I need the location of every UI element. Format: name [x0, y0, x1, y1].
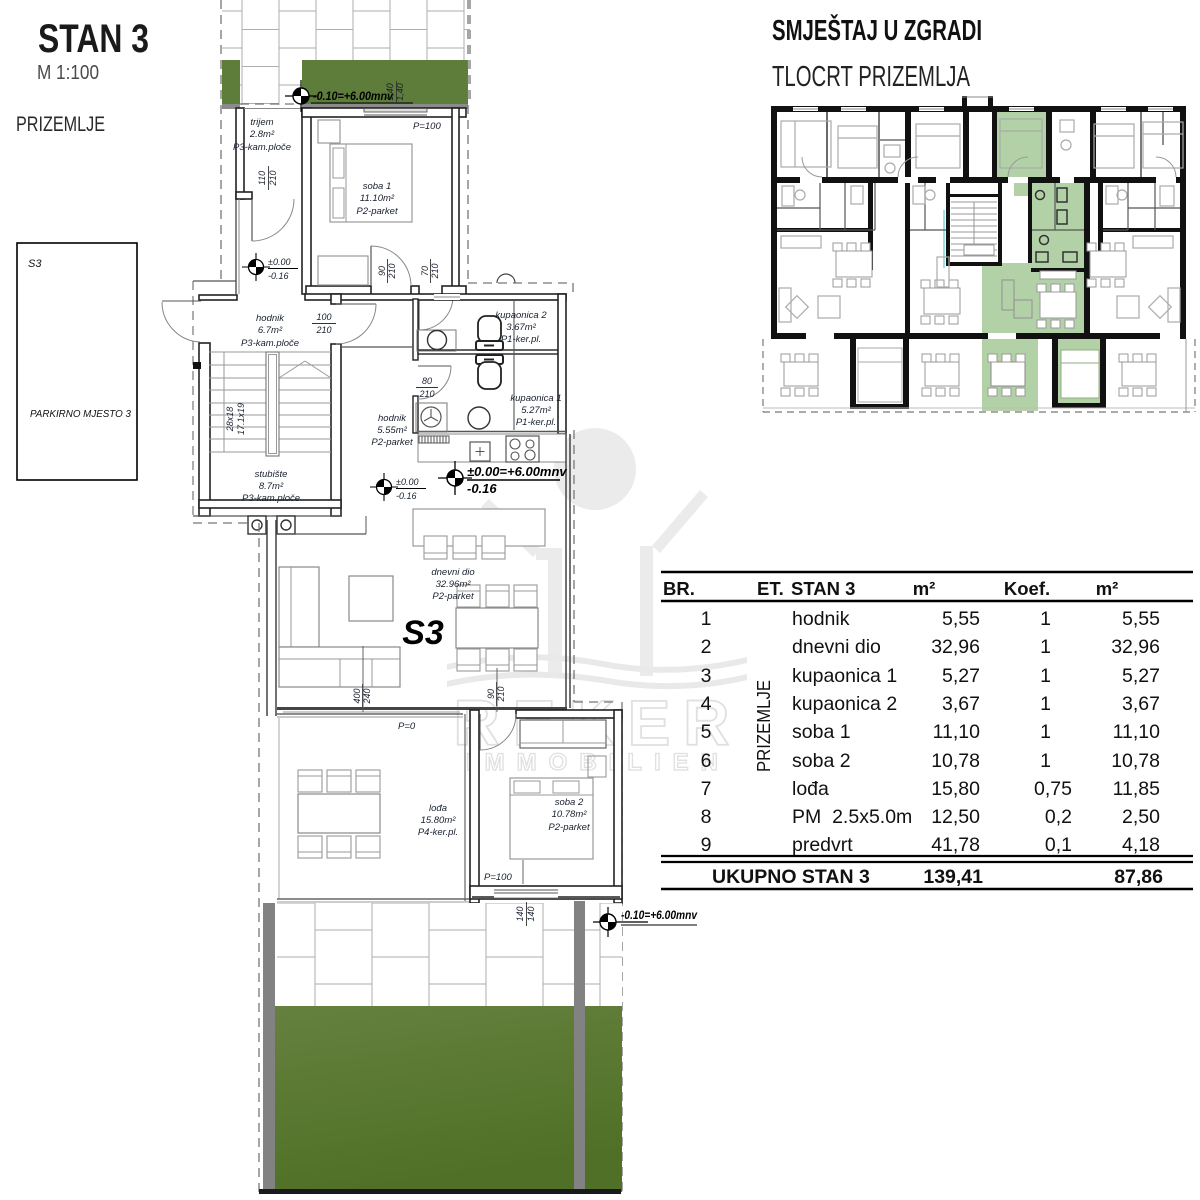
- svg-text:hodnik: hodnik: [256, 313, 285, 324]
- svg-text:3.67m²: 3.67m²: [506, 322, 536, 333]
- svg-text:10,78: 10,78: [931, 750, 980, 772]
- svg-text:kupaonica 1: kupaonica 1: [792, 665, 897, 687]
- svg-text:3,67: 3,67: [1122, 693, 1160, 715]
- svg-text:11.10m²: 11.10m²: [360, 193, 395, 204]
- svg-text:5,55: 5,55: [942, 608, 980, 630]
- svg-text:90: 90: [377, 266, 387, 276]
- svg-text:lođa: lođa: [792, 778, 829, 800]
- svg-text:P=0: P=0: [398, 721, 416, 732]
- svg-text:100: 100: [316, 312, 331, 322]
- svg-text:P2-parket: P2-parket: [371, 437, 413, 448]
- svg-text:5,27: 5,27: [1122, 665, 1160, 687]
- svg-text:8: 8: [701, 806, 712, 828]
- svg-text:IMMOBILIEN: IMMOBILIEN: [466, 749, 730, 776]
- svg-text:140: 140: [526, 906, 536, 921]
- svg-text:P=100: P=100: [413, 121, 441, 132]
- svg-text:1: 1: [1040, 608, 1051, 630]
- svg-text:-0.10=+6.00mnv: -0.10=+6.00mnv: [621, 910, 698, 922]
- svg-text:kupaonica 2: kupaonica 2: [495, 310, 547, 321]
- svg-text:M 1:100: M 1:100: [37, 62, 99, 84]
- svg-text:8.7m²: 8.7m²: [259, 481, 284, 492]
- svg-text:S3: S3: [402, 614, 444, 652]
- svg-text:90: 90: [486, 689, 496, 699]
- svg-text:trijem: trijem: [250, 117, 273, 128]
- svg-text:±0.00: ±0.00: [396, 477, 418, 487]
- svg-text:17.1x19: 17.1x19: [236, 403, 246, 435]
- svg-text:P=100: P=100: [484, 872, 512, 883]
- svg-text:15.80m²: 15.80m²: [421, 815, 457, 826]
- svg-text:2,50: 2,50: [1122, 806, 1160, 828]
- svg-text:PRIZEMLJE: PRIZEMLJE: [16, 112, 105, 136]
- svg-text:TLOCRT PRIZEMLJA: TLOCRT PRIZEMLJA: [772, 61, 970, 93]
- svg-text:kupaonica 2: kupaonica 2: [792, 693, 897, 715]
- svg-text:1: 1: [701, 608, 712, 630]
- svg-text:210: 210: [430, 263, 440, 279]
- svg-text:SMJEŠTAJ U ZGRADI: SMJEŠTAJ U ZGRADI: [772, 13, 982, 47]
- svg-text:PRIZEMLJE: PRIZEMLJE: [753, 680, 774, 772]
- svg-text:210: 210: [418, 389, 434, 399]
- svg-text:1: 1: [1040, 665, 1051, 687]
- svg-text:7: 7: [701, 778, 712, 800]
- svg-text:210: 210: [496, 686, 506, 702]
- svg-text:P4-ker.pl.: P4-ker.pl.: [418, 827, 458, 838]
- svg-text:32.96m²: 32.96m²: [436, 579, 472, 590]
- svg-text:210: 210: [268, 170, 278, 186]
- svg-text:PM 2.5x5.0m: PM 2.5x5.0m: [792, 806, 912, 828]
- svg-text:10,78: 10,78: [1111, 750, 1160, 772]
- svg-text:3,67: 3,67: [942, 693, 980, 715]
- svg-text:dnevni dio: dnevni dio: [431, 567, 474, 578]
- svg-text:0,2: 0,2: [1045, 806, 1072, 828]
- svg-text:4,18: 4,18: [1122, 834, 1160, 856]
- svg-text:±0.00: ±0.00: [268, 257, 290, 267]
- svg-text:210: 210: [315, 325, 331, 335]
- svg-text:P2-parket: P2-parket: [432, 591, 474, 602]
- svg-text:15,80: 15,80: [931, 778, 980, 800]
- svg-text:m²: m²: [1096, 578, 1119, 599]
- svg-text:32,96: 32,96: [931, 636, 980, 658]
- svg-text:5,55: 5,55: [1122, 608, 1160, 630]
- svg-text:1: 1: [1040, 750, 1051, 772]
- svg-text:m²: m²: [913, 578, 936, 599]
- svg-text:5.27m²: 5.27m²: [521, 405, 551, 416]
- svg-text:139,41: 139,41: [923, 866, 983, 888]
- svg-text:110: 110: [257, 171, 267, 185]
- svg-text:soba 2: soba 2: [555, 797, 584, 808]
- svg-text:5,27: 5,27: [942, 665, 980, 687]
- svg-text:STAN 3: STAN 3: [791, 578, 855, 599]
- svg-text:P2-parket: P2-parket: [548, 822, 590, 833]
- svg-text:28x18: 28x18: [225, 407, 235, 433]
- svg-text:4: 4: [701, 693, 712, 715]
- svg-text:dnevni dio: dnevni dio: [792, 636, 881, 658]
- svg-text:11,85: 11,85: [1113, 778, 1161, 800]
- svg-text:87,86: 87,86: [1114, 866, 1163, 888]
- svg-text:P3-kam.ploče: P3-kam.ploče: [242, 493, 300, 504]
- svg-text:80: 80: [422, 376, 432, 386]
- svg-text:P3-kam.ploče: P3-kam.ploče: [233, 142, 291, 153]
- svg-text:6.7m²: 6.7m²: [258, 325, 283, 336]
- svg-text:3: 3: [701, 665, 712, 687]
- svg-text:-0.16: -0.16: [467, 481, 497, 496]
- svg-text:P1-ker.pl.: P1-ker.pl.: [516, 417, 556, 428]
- svg-text:P3-kam.ploče: P3-kam.ploče: [241, 338, 299, 349]
- svg-text:32,96: 32,96: [1111, 636, 1160, 658]
- svg-text:±0.00=+6.00mnv: ±0.00=+6.00mnv: [467, 464, 567, 479]
- svg-text:1: 1: [1040, 721, 1051, 743]
- svg-text:41,78: 41,78: [931, 834, 980, 856]
- svg-text:0,1: 0,1: [1045, 834, 1072, 856]
- svg-text:soba 1: soba 1: [792, 721, 851, 743]
- svg-text:70: 70: [420, 266, 430, 276]
- svg-text:UKUPNO STAN 3: UKUPNO STAN 3: [712, 866, 870, 888]
- svg-text:11,10: 11,10: [1113, 721, 1161, 743]
- svg-text:hodnik: hodnik: [792, 608, 850, 630]
- svg-text:2.8m²: 2.8m²: [249, 129, 275, 140]
- svg-text:10.78m²: 10.78m²: [552, 809, 588, 820]
- svg-text:9: 9: [701, 834, 712, 856]
- svg-text:hodnik: hodnik: [378, 413, 407, 424]
- svg-text:1: 1: [1040, 636, 1051, 658]
- svg-text:-0.10=+6.00mnv: -0.10=+6.00mnv: [313, 91, 394, 103]
- svg-text:STAN 3: STAN 3: [38, 17, 149, 61]
- svg-text:soba 1: soba 1: [363, 181, 392, 192]
- svg-text:Koef.: Koef.: [1004, 578, 1050, 599]
- svg-text:11,10: 11,10: [933, 721, 981, 743]
- svg-text:2: 2: [701, 636, 712, 658]
- svg-text:12,50: 12,50: [931, 806, 980, 828]
- svg-text:P1-ker.pl.: P1-ker.pl.: [501, 334, 541, 345]
- svg-text:stubište: stubište: [255, 469, 288, 480]
- svg-text:BR.: BR.: [663, 578, 695, 599]
- svg-text:5: 5: [701, 721, 712, 743]
- svg-text:predvrt: predvrt: [792, 834, 853, 856]
- svg-text:PARKIRNO MJESTO 3: PARKIRNO MJESTO 3: [30, 409, 131, 420]
- svg-text:0,75: 0,75: [1034, 778, 1072, 800]
- svg-text:6: 6: [701, 750, 712, 772]
- svg-text:1: 1: [1040, 693, 1051, 715]
- svg-text:-0.16: -0.16: [396, 491, 417, 501]
- svg-text:1,40: 1,40: [385, 83, 395, 101]
- svg-text:lođa: lođa: [429, 803, 447, 814]
- svg-text:400: 400: [352, 688, 362, 703]
- svg-text:ET.: ET.: [757, 578, 784, 599]
- svg-text:240: 240: [362, 688, 372, 704]
- svg-text:-0.16: -0.16: [268, 271, 289, 281]
- svg-text:210: 210: [387, 263, 397, 279]
- svg-text:P2-parket: P2-parket: [356, 206, 398, 217]
- svg-text:kupaonica 1: kupaonica 1: [510, 393, 561, 404]
- svg-text:S3: S3: [28, 258, 42, 270]
- svg-text:140: 140: [515, 906, 525, 921]
- svg-text:soba 2: soba 2: [792, 750, 851, 772]
- svg-text:5.55m²: 5.55m²: [377, 425, 407, 436]
